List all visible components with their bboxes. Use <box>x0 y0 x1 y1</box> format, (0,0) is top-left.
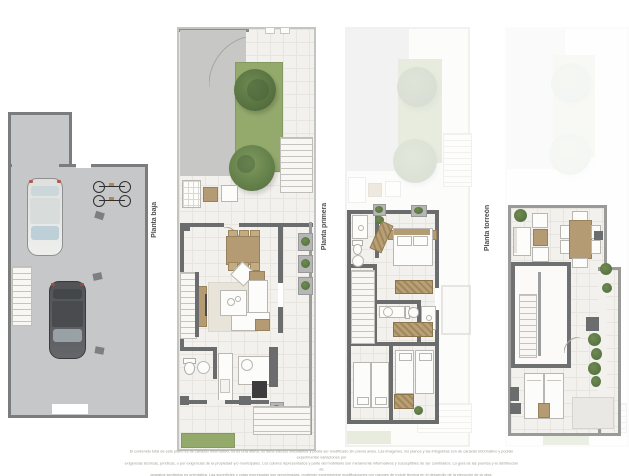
wardrobe-icon <box>393 322 433 337</box>
wall <box>510 403 521 414</box>
lawn <box>181 433 235 448</box>
bed-single-icon <box>371 362 389 408</box>
side-table-icon <box>255 319 270 331</box>
toilet-bowl <box>353 244 362 255</box>
car-icon <box>27 178 63 256</box>
shower-icon <box>352 215 368 239</box>
dining-table-icon <box>569 220 592 259</box>
sink-icon <box>383 307 393 317</box>
garage-seam <box>12 160 59 169</box>
planter-icon <box>298 255 313 273</box>
dining-chair-icon <box>591 240 601 254</box>
bed-double-icon <box>393 228 433 266</box>
car-icon <box>49 281 86 359</box>
floor-label-torreon: Planta torreón <box>484 205 491 251</box>
planter-box <box>586 317 599 331</box>
planter-icon <box>298 233 313 251</box>
wardrobe-icon <box>394 394 414 409</box>
stairs-icon <box>519 294 537 358</box>
patio-table-icon <box>203 187 218 202</box>
floor-label-primera: Planta primera <box>321 203 328 250</box>
kitchen-sink-icon <box>220 379 230 393</box>
wall <box>195 272 199 337</box>
garage-wall-notch <box>76 163 91 168</box>
sink-icon <box>197 361 210 374</box>
planter-icon <box>373 204 386 216</box>
wall <box>510 387 519 401</box>
bed-single-icon <box>353 362 371 408</box>
oven-icon <box>252 381 267 398</box>
stairs-icon <box>351 270 375 344</box>
tv-icon <box>205 294 207 316</box>
tree-shadow <box>247 79 269 101</box>
dining-table-icon <box>226 236 260 265</box>
wall-pillar <box>594 231 603 240</box>
lounge-sofa-icon <box>513 227 531 256</box>
torreon-plan <box>508 205 620 430</box>
wall <box>239 396 251 405</box>
shrub-icon <box>514 209 527 222</box>
wall <box>278 223 283 333</box>
lounge-chair-icon <box>532 247 549 262</box>
patio-table-icon <box>538 403 550 418</box>
door-opening <box>207 400 225 404</box>
door-arc-icon <box>564 337 580 353</box>
primera-plan <box>347 210 439 424</box>
garage-door-opening <box>52 404 88 414</box>
toilet-bowl <box>184 362 195 375</box>
bed-single-icon <box>415 350 434 394</box>
wall <box>239 223 313 227</box>
patio-table-icon <box>533 229 548 246</box>
shrub-icon <box>588 333 601 346</box>
stair-enclosure <box>511 262 571 368</box>
landing <box>572 397 614 429</box>
patio-chair-icon <box>221 185 238 202</box>
bicycles-icon <box>93 180 131 206</box>
wall <box>180 396 189 405</box>
planter-icon <box>411 205 427 217</box>
wardrobe-icon <box>395 280 433 294</box>
stairs-icon <box>12 266 32 326</box>
floor-label-semisotano: Planta semisótano <box>0 188 2 248</box>
floor-plan-semisotano <box>0 110 150 422</box>
shrub-icon <box>591 376 601 387</box>
floor-label-baja: Planta baja <box>151 202 158 238</box>
wall-notch <box>280 27 290 34</box>
wall <box>269 347 278 387</box>
stool-icon <box>241 359 253 371</box>
garage-object <box>94 346 104 354</box>
wall-notch <box>265 27 275 34</box>
lounge-chair-icon <box>532 213 548 228</box>
floorplan-sheet: Planta semisótano <box>0 0 629 476</box>
floor-plan-torreon <box>505 27 629 447</box>
wall <box>213 347 217 379</box>
shrub-icon <box>591 348 602 360</box>
floor-plan-primera <box>345 27 470 447</box>
shrub-icon <box>602 283 612 293</box>
balcony-outline <box>441 285 471 335</box>
glass-door <box>278 283 283 307</box>
sink-icon <box>352 255 364 267</box>
dining-chair-icon <box>572 258 588 268</box>
wall <box>309 222 312 435</box>
disclaimer-text: El contenido total de este plano es de c… <box>124 449 519 476</box>
floor-plan-baja <box>177 27 316 451</box>
shrub-icon <box>414 406 423 415</box>
planter-icon <box>298 277 313 295</box>
entry-steps-icon <box>253 406 311 435</box>
disclaimer-line-2: exigencias técnicas, jurídicas, o por ex… <box>124 461 519 473</box>
toilet-bowl <box>408 307 419 318</box>
bed-single-icon <box>395 350 414 394</box>
shrub-icon <box>600 263 612 275</box>
wall <box>180 347 216 351</box>
coffee-table-icon <box>220 290 247 316</box>
tree-shadow <box>237 155 255 173</box>
disclaimer-line-1: El contenido total de este plano es de c… <box>124 449 519 461</box>
shrub-icon <box>588 362 601 375</box>
patio-chair-icon <box>182 180 201 208</box>
garden-steps-icon <box>280 137 313 193</box>
